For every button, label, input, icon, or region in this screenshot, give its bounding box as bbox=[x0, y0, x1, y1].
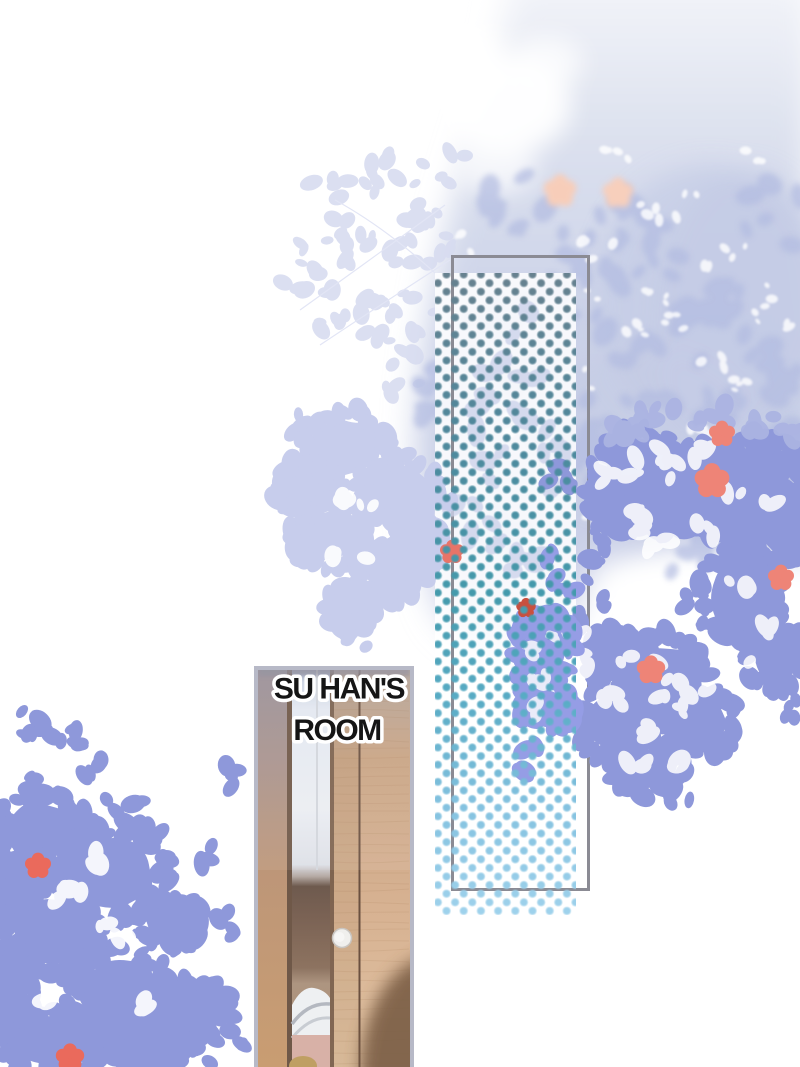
svg-text:SU HAN'S: SU HAN'S bbox=[274, 673, 405, 706]
svg-text:ROOM: ROOM bbox=[293, 714, 380, 747]
